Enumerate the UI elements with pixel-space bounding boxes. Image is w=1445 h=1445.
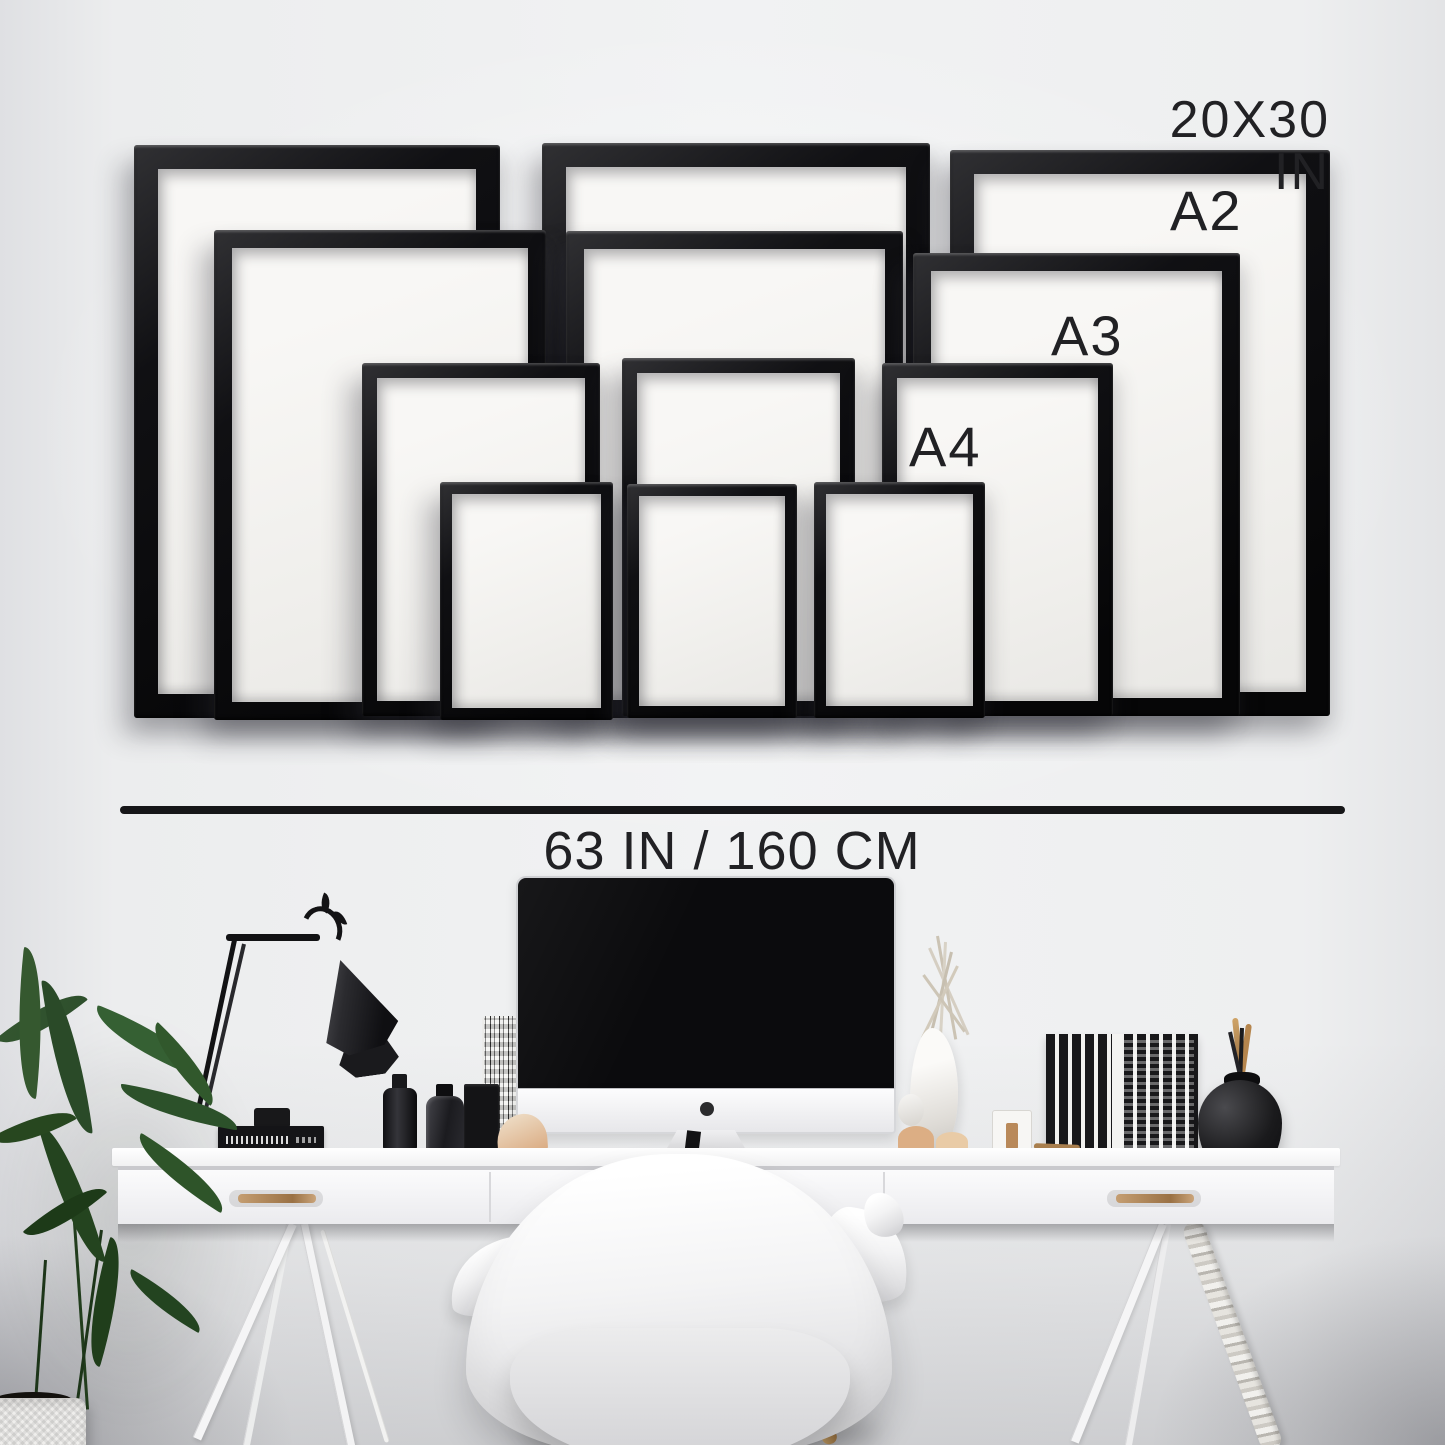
measure-line xyxy=(120,806,1345,814)
imac-screen xyxy=(516,876,896,1088)
black-holder xyxy=(464,1084,499,1150)
white-ribbed-pot xyxy=(0,1398,86,1445)
drawer-handle-left xyxy=(238,1194,316,1203)
dark-glass-bottle xyxy=(426,1096,464,1152)
drawer-handle-right xyxy=(1116,1194,1194,1203)
size-label-a4: A4 xyxy=(909,419,982,475)
frame-paper xyxy=(639,496,785,706)
book-spine-marks xyxy=(296,1137,316,1143)
frame-a4-right xyxy=(814,482,985,718)
screen-reflection xyxy=(518,878,894,1088)
apple-logo xyxy=(700,1102,714,1116)
frame-paper xyxy=(826,494,973,706)
size-label-a3: A3 xyxy=(1051,308,1124,364)
book-spine-marks xyxy=(226,1136,290,1144)
frame-a4-left xyxy=(440,482,613,720)
size-label-a2: A2 xyxy=(1170,183,1243,239)
product-size-chart-image: 20X30 IN A2 A3 A4 63 IN / 160 CM xyxy=(0,0,1445,1445)
vase-bump xyxy=(898,1094,924,1126)
tiny-figurine xyxy=(1006,1123,1018,1149)
black-bottle xyxy=(383,1088,417,1150)
frame-a4-center xyxy=(627,484,797,718)
lamp-base-mount xyxy=(254,1108,290,1128)
stand-cable-slot xyxy=(685,1130,701,1150)
chair-seat-lower xyxy=(510,1328,850,1445)
frame-paper xyxy=(452,494,601,708)
wall-width-label: 63 IN / 160 CM xyxy=(522,824,942,878)
drawer-seam xyxy=(489,1172,491,1222)
imac-stand xyxy=(666,1130,746,1150)
